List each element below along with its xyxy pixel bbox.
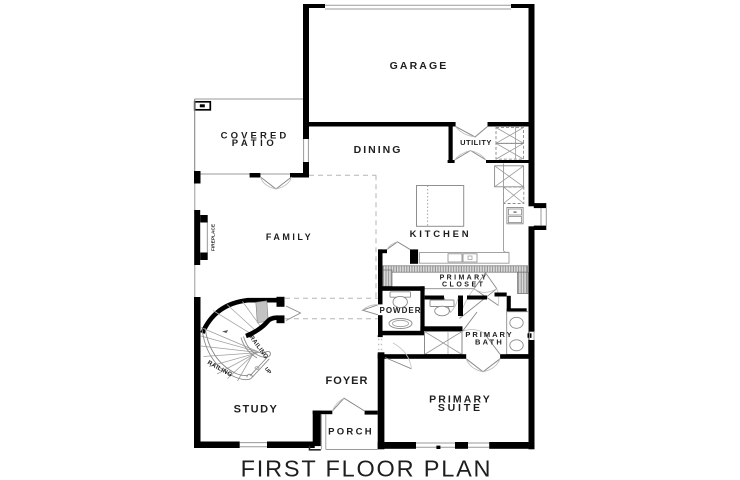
svg-text:KITCHEN: KITCHEN <box>410 229 472 240</box>
svg-text:PORCH: PORCH <box>328 427 374 438</box>
svg-text:PATIO: PATIO <box>232 138 278 149</box>
svg-text:SUITE: SUITE <box>438 402 483 414</box>
svg-text:BATH: BATH <box>475 337 504 346</box>
svg-text:FAMILY: FAMILY <box>266 232 313 242</box>
svg-text:GARAGE: GARAGE <box>390 60 449 72</box>
svg-text:FIRST FLOOR PLAN: FIRST FLOOR PLAN <box>241 456 493 480</box>
svg-text:STUDY: STUDY <box>234 403 279 415</box>
svg-text:UTILITY: UTILITY <box>460 138 492 147</box>
svg-text:DINING: DINING <box>354 144 403 156</box>
svg-text:FOYER: FOYER <box>326 375 369 387</box>
svg-text:FIREPLACE: FIREPLACE <box>211 223 217 251</box>
